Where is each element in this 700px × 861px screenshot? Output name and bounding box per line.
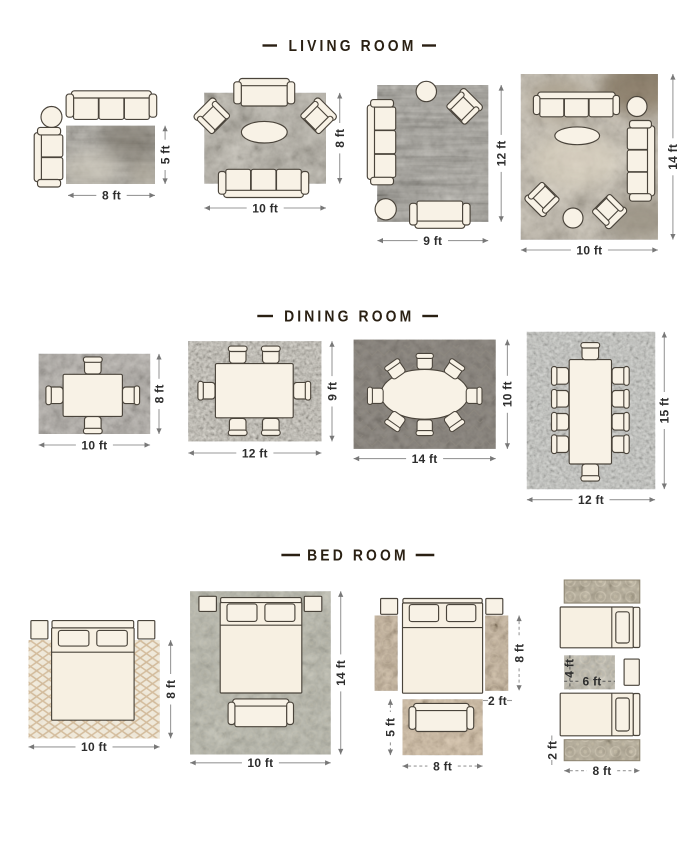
svg-text:8 ft: 8 ft <box>593 764 612 778</box>
svg-text:4 ft: 4 ft <box>563 659 577 678</box>
svg-text:10 ft: 10 ft <box>252 201 278 215</box>
svg-text:DINING ROOM: DINING ROOM <box>284 308 414 326</box>
svg-text:10 ft: 10 ft <box>81 438 107 452</box>
svg-text:14 ft: 14 ft <box>412 452 438 466</box>
svg-text:6 ft: 6 ft <box>583 674 602 688</box>
svg-text:8 ft: 8 ft <box>152 384 166 403</box>
svg-text:12 ft: 12 ft <box>578 493 604 507</box>
svg-text:10 ft: 10 ft <box>81 740 107 754</box>
svg-text:5 ft: 5 ft <box>158 145 172 164</box>
svg-text:2 ft: 2 ft <box>545 741 559 760</box>
svg-text:14 ft: 14 ft <box>334 660 348 686</box>
svg-text:12 ft: 12 ft <box>495 140 509 166</box>
svg-text:14 ft: 14 ft <box>666 144 680 170</box>
svg-text:9 ft: 9 ft <box>423 234 442 248</box>
svg-text:12 ft: 12 ft <box>242 446 268 460</box>
svg-text:9 ft: 9 ft <box>325 382 339 401</box>
svg-text:10 ft: 10 ft <box>247 756 273 770</box>
svg-text:10 ft: 10 ft <box>576 243 602 257</box>
svg-text:8 ft: 8 ft <box>102 189 121 203</box>
svg-text:15 ft: 15 ft <box>658 398 672 424</box>
svg-text:8 ft: 8 ft <box>164 680 178 699</box>
svg-text:LIVING ROOM: LIVING ROOM <box>289 37 417 55</box>
svg-text:8 ft: 8 ft <box>512 644 526 663</box>
svg-text:8 ft: 8 ft <box>333 129 347 148</box>
svg-text:2 ft: 2 ft <box>488 694 507 708</box>
svg-text:5 ft: 5 ft <box>384 718 398 737</box>
svg-text:10 ft: 10 ft <box>501 381 515 407</box>
svg-text:8 ft: 8 ft <box>433 759 452 773</box>
svg-text:BED ROOM: BED ROOM <box>307 547 409 565</box>
